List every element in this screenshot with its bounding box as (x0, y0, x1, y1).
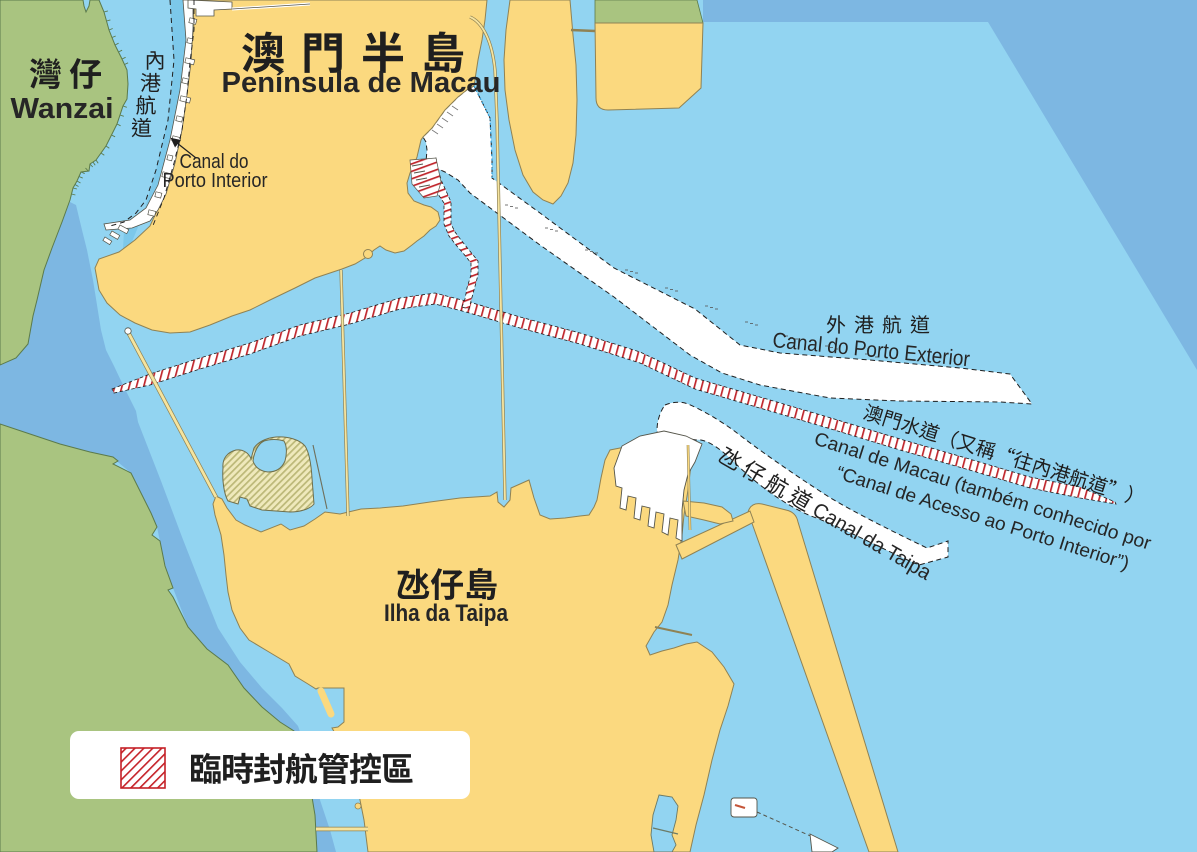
svg-text:Ilha da Taipa: Ilha da Taipa (384, 600, 509, 627)
svg-text:Península de Macau: Península de Macau (222, 67, 501, 99)
svg-text:Wanzai: Wanzai (11, 93, 114, 125)
svg-text:Porto Interior: Porto Interior (163, 170, 268, 192)
